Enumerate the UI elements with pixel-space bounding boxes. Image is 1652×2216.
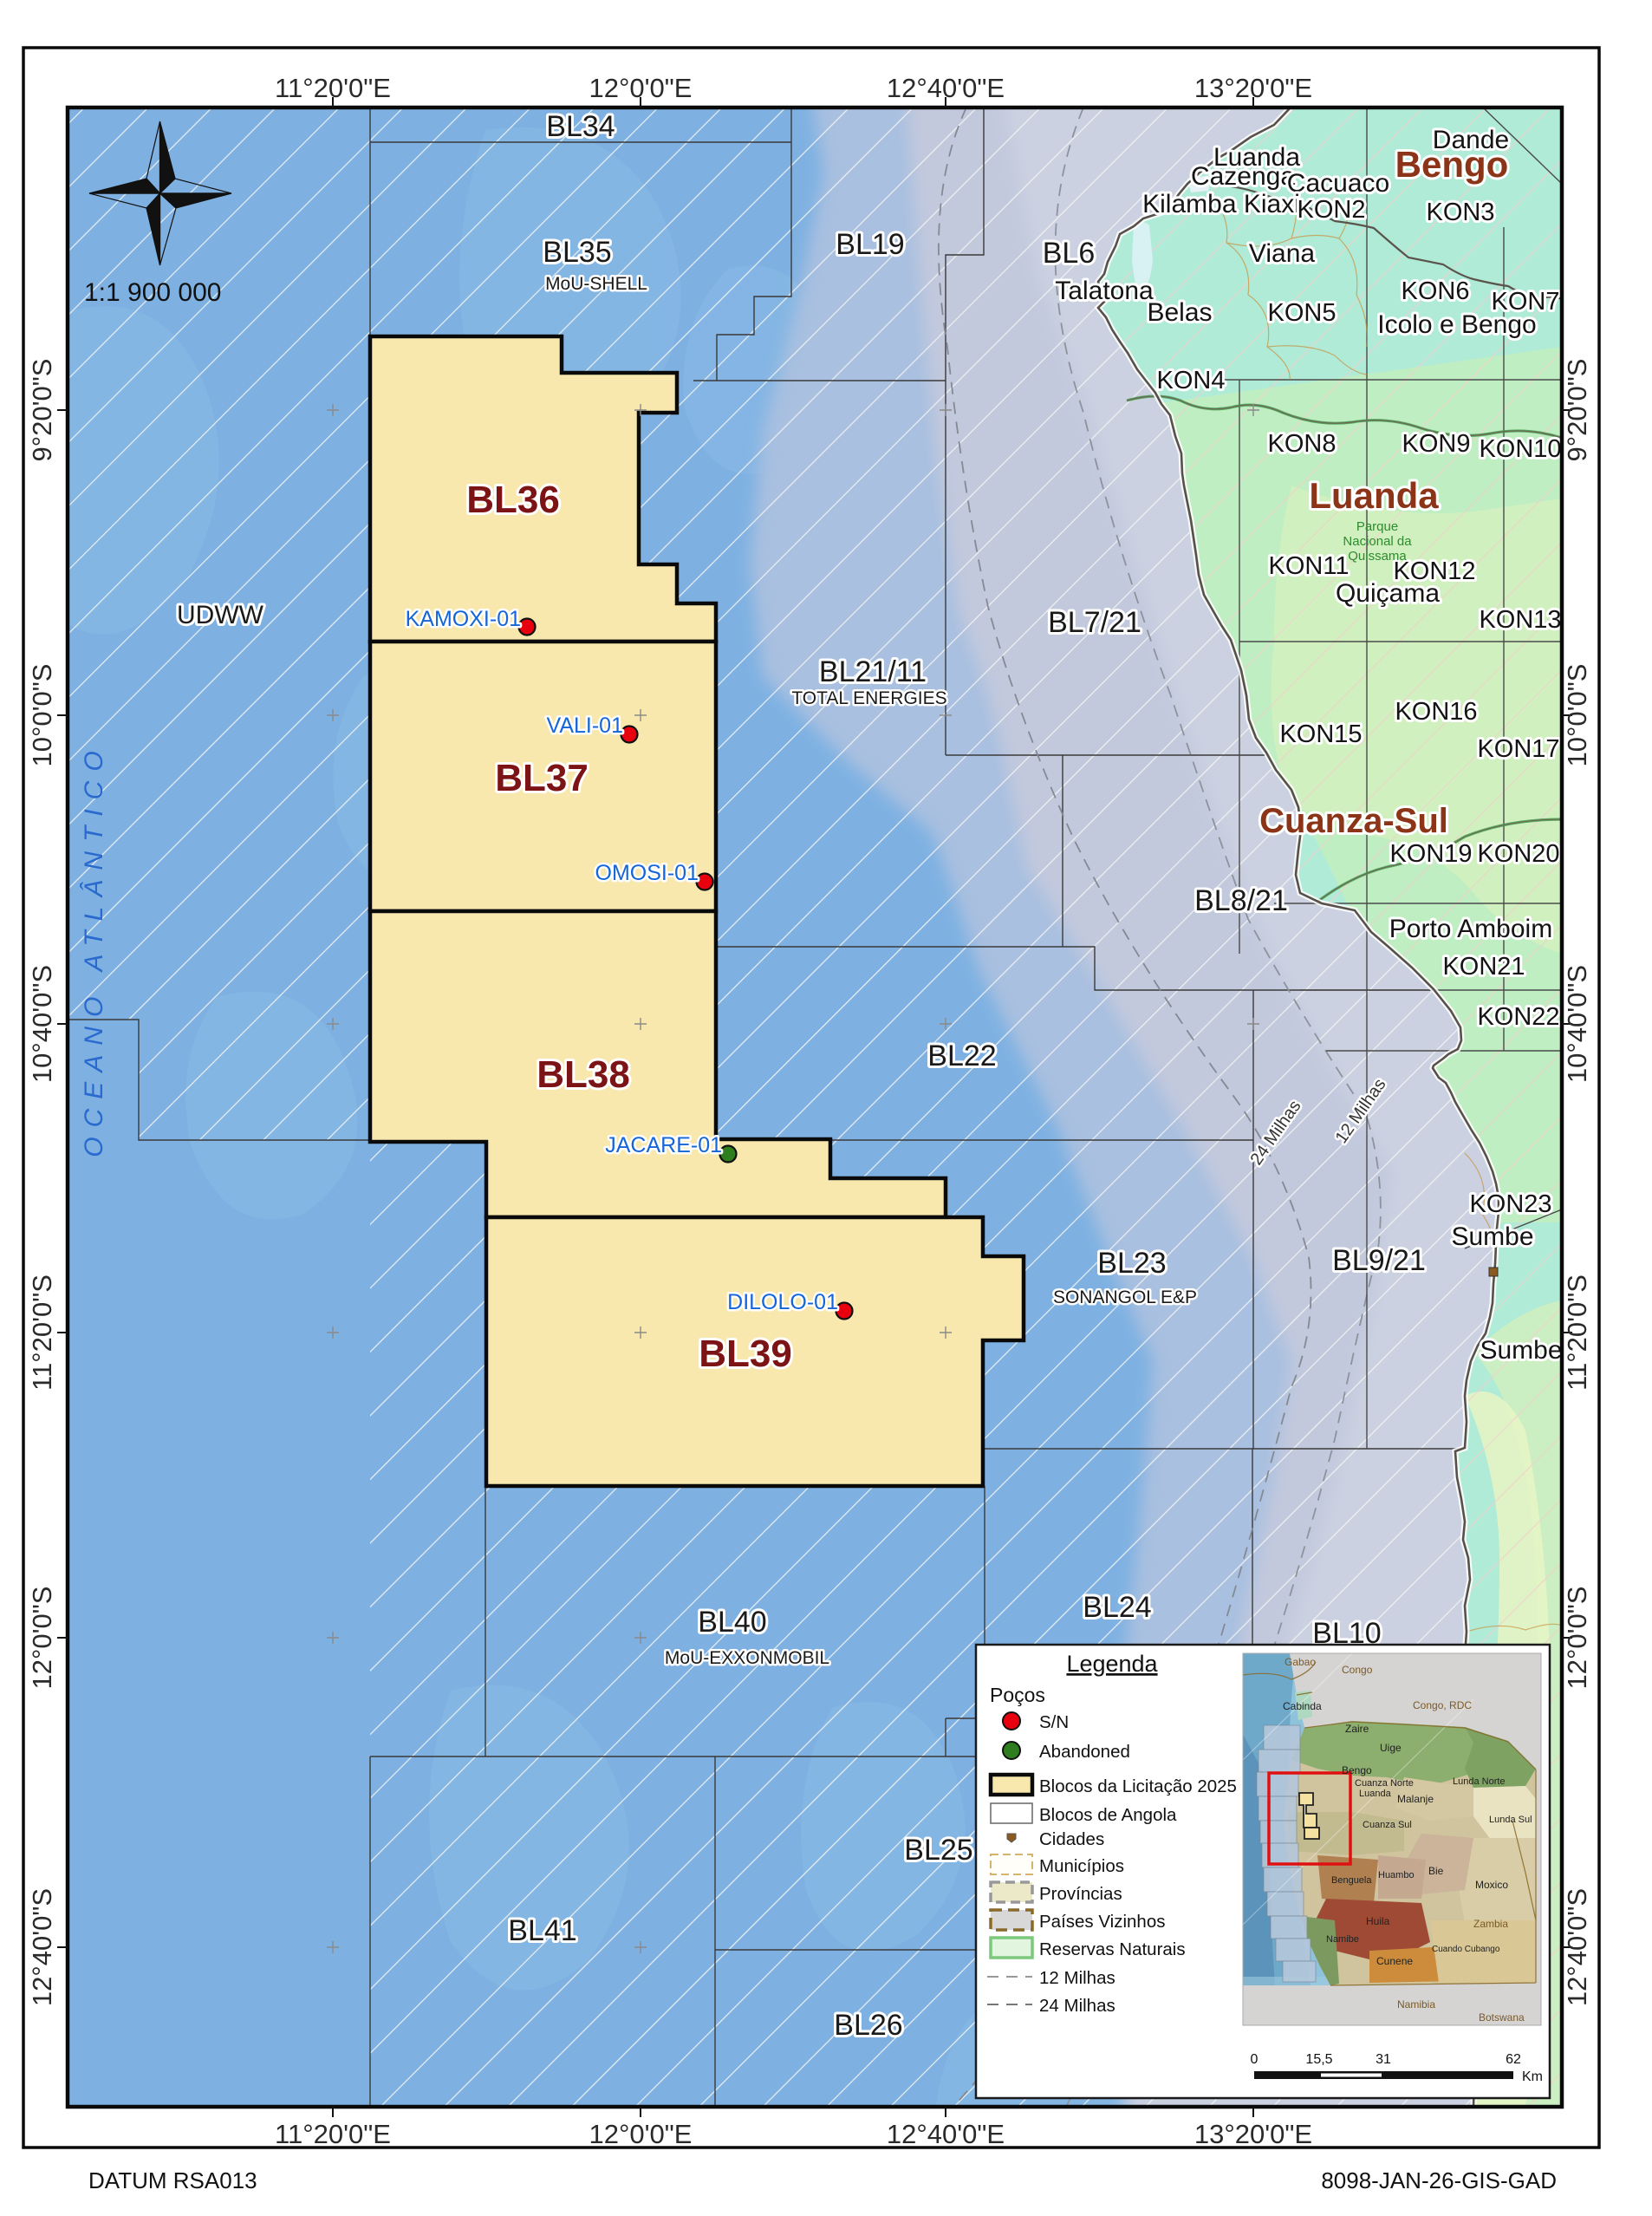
- svg-text:KON15: KON15: [1279, 720, 1362, 748]
- svg-text:BL38: BL38: [537, 1053, 630, 1096]
- svg-text:Namibia: Namibia: [1397, 1998, 1435, 2011]
- svg-text:S/N: S/N: [1039, 1712, 1069, 1732]
- svg-text:KON22: KON22: [1477, 1003, 1559, 1031]
- svg-text:UDWW: UDWW: [177, 601, 264, 629]
- svg-text:KON9: KON9: [1402, 430, 1471, 458]
- svg-text:KON10: KON10: [1479, 435, 1561, 463]
- svg-text:9°20'0"S: 9°20'0"S: [1562, 359, 1592, 462]
- svg-text:Municípios: Municípios: [1039, 1856, 1124, 1876]
- svg-text:Gabao: Gabao: [1285, 1656, 1316, 1668]
- svg-text:BL39: BL39: [699, 1333, 792, 1375]
- svg-text:BL34: BL34: [546, 110, 615, 143]
- svg-text:Moxico: Moxico: [1475, 1879, 1508, 1891]
- svg-text:BL40: BL40: [698, 1606, 766, 1639]
- svg-text:KON13: KON13: [1479, 606, 1561, 634]
- svg-text:12°40'0"E: 12°40'0"E: [887, 2119, 1005, 2149]
- svg-text:Benguela: Benguela: [1331, 1875, 1372, 1886]
- svg-text:KON21: KON21: [1442, 953, 1525, 981]
- svg-text:BL41: BL41: [508, 1914, 576, 1947]
- svg-text:Lunda Norte: Lunda Norte: [1453, 1776, 1506, 1787]
- svg-text:KON2: KON2: [1298, 196, 1366, 224]
- svg-text:DILOLO-01: DILOLO-01: [727, 1290, 838, 1314]
- svg-text:BL24: BL24: [1083, 1591, 1151, 1624]
- svg-text:KON19: KON19: [1389, 840, 1472, 868]
- svg-text:MoU-EXXONMOBIL: MoU-EXXONMOBIL: [665, 1648, 829, 1668]
- svg-text:Bengo: Bengo: [1342, 1764, 1372, 1776]
- svg-text:Namibe: Namibe: [1326, 1934, 1359, 1945]
- svg-text:Cuanza Norte: Cuanza Norte: [1355, 1778, 1414, 1789]
- svg-text:Parque: Parque: [1356, 519, 1398, 534]
- svg-text:Cuanza-Sul: Cuanza-Sul: [1259, 802, 1448, 840]
- svg-text:Congo: Congo: [1342, 1664, 1373, 1676]
- svg-text:11°20'0"E: 11°20'0"E: [275, 73, 391, 103]
- svg-text:Viana: Viana: [1249, 239, 1316, 268]
- svg-text:KON23: KON23: [1469, 1190, 1551, 1218]
- svg-text:KON16: KON16: [1395, 698, 1477, 726]
- svg-text:Talatona: Talatona: [1055, 277, 1154, 305]
- svg-text:KON17: KON17: [1477, 735, 1559, 763]
- svg-text:BL8/21: BL8/21: [1194, 884, 1288, 917]
- svg-text:Reservas Naturais: Reservas Naturais: [1039, 1939, 1186, 1959]
- svg-text:OCEANO ATLÂNTICO: OCEANO ATLÂNTICO: [80, 741, 108, 1157]
- svg-text:11°20'0"S: 11°20'0"S: [27, 1274, 57, 1391]
- svg-text:12°40'0"E: 12°40'0"E: [887, 73, 1005, 103]
- svg-text:10°40'0"S: 10°40'0"S: [1562, 965, 1592, 1083]
- svg-text:Botswana: Botswana: [1479, 2011, 1525, 2024]
- svg-text:KON20: KON20: [1477, 840, 1559, 868]
- svg-text:OMOSI-01: OMOSI-01: [595, 861, 699, 885]
- svg-text:12°0'0"E: 12°0'0"E: [589, 2119, 693, 2149]
- svg-text:13°20'0"E: 13°20'0"E: [1194, 2119, 1312, 2149]
- svg-text:Congo, RDC: Congo, RDC: [1413, 1699, 1472, 1711]
- svg-text:Nacional da: Nacional da: [1343, 534, 1412, 549]
- svg-text:12°40'0"S: 12°40'0"S: [27, 1888, 57, 2006]
- svg-text:Cuando Cubango: Cuando Cubango: [1432, 1945, 1500, 1954]
- svg-text:KON3: KON3: [1427, 199, 1495, 226]
- svg-text:BL6: BL6: [1043, 237, 1096, 270]
- svg-text:1:1 900 000: 1:1 900 000: [84, 278, 221, 307]
- svg-text:BL21/11: BL21/11: [819, 655, 927, 688]
- svg-text:KON4: KON4: [1157, 367, 1226, 394]
- svg-text:Sumbe: Sumbe: [1480, 1336, 1562, 1365]
- svg-text:SONANGOL E&P: SONANGOL E&P: [1053, 1287, 1197, 1307]
- svg-text:12°0'0"S: 12°0'0"S: [1562, 1587, 1592, 1690]
- svg-text:Blocos de Angola: Blocos de Angola: [1039, 1805, 1177, 1825]
- svg-text:Províncias: Províncias: [1039, 1884, 1122, 1904]
- svg-text:Cunene: Cunene: [1376, 1955, 1413, 1967]
- svg-text:12°0'0"S: 12°0'0"S: [27, 1587, 57, 1690]
- svg-text:15,5: 15,5: [1305, 2052, 1332, 2067]
- svg-text:Cidades: Cidades: [1039, 1829, 1104, 1849]
- svg-text:Países Vizinhos: Países Vizinhos: [1039, 1912, 1165, 1932]
- svg-text:9°20'0"S: 9°20'0"S: [27, 359, 57, 462]
- svg-text:Blocos da Licitação 2025: Blocos da Licitação 2025: [1039, 1776, 1237, 1796]
- svg-text:Dande: Dande: [1433, 126, 1509, 154]
- svg-text:11°20'0"S: 11°20'0"S: [1562, 1274, 1592, 1391]
- svg-text:BL26: BL26: [834, 2009, 902, 2042]
- svg-text:Huambo: Huambo: [1378, 1870, 1415, 1880]
- svg-text:Bie: Bie: [1428, 1865, 1444, 1877]
- svg-text:8098-JAN-26-GIS-GAD: 8098-JAN-26-GIS-GAD: [1321, 2167, 1557, 2193]
- svg-text:KON7: KON7: [1492, 288, 1560, 316]
- svg-text:Sumbe: Sumbe: [1451, 1222, 1533, 1251]
- svg-text:24 Milhas: 24 Milhas: [1039, 1996, 1115, 2016]
- svg-text:VALI-01: VALI-01: [547, 714, 623, 738]
- svg-text:12°0'0"E: 12°0'0"E: [589, 73, 693, 103]
- svg-text:11°20'0"E: 11°20'0"E: [275, 2119, 391, 2149]
- svg-text:Zaire: Zaire: [1345, 1723, 1369, 1735]
- svg-text:Cuanza Sul: Cuanza Sul: [1363, 1820, 1412, 1830]
- svg-text:12 Milhas: 12 Milhas: [1039, 1968, 1115, 1988]
- svg-text:62: 62: [1506, 2052, 1521, 2067]
- svg-text:10°40'0"S: 10°40'0"S: [27, 965, 57, 1083]
- svg-text:10°0'0"S: 10°0'0"S: [27, 664, 57, 767]
- svg-text:10°0'0"S: 10°0'0"S: [1562, 664, 1592, 767]
- svg-text:BL25: BL25: [904, 1834, 972, 1867]
- svg-text:BL19: BL19: [836, 228, 904, 261]
- svg-text:Luanda: Luanda: [1309, 475, 1439, 516]
- svg-text:BL36: BL36: [466, 479, 560, 521]
- svg-text:Porto Amboim: Porto Amboim: [1389, 915, 1552, 943]
- svg-text:Luanda: Luanda: [1359, 1789, 1392, 1799]
- svg-text:BL35: BL35: [543, 236, 611, 269]
- svg-text:Abandoned: Abandoned: [1039, 1742, 1130, 1762]
- svg-text:Uige: Uige: [1380, 1742, 1402, 1754]
- svg-text:DATUM RSA013: DATUM RSA013: [88, 2167, 257, 2193]
- svg-text:KAMOXI-01: KAMOXI-01: [406, 607, 521, 631]
- svg-text:Legenda: Legenda: [1066, 1651, 1158, 1677]
- svg-text:Quissama: Quissama: [1348, 549, 1407, 564]
- svg-text:Belas: Belas: [1147, 298, 1212, 327]
- svg-text:BL23: BL23: [1097, 1247, 1166, 1280]
- svg-text:BL22: BL22: [927, 1040, 996, 1072]
- svg-text:JACARE-01: JACARE-01: [605, 1133, 722, 1157]
- svg-text:Cazenga: Cazenga: [1191, 162, 1295, 191]
- svg-text:Malanje: Malanje: [1397, 1793, 1434, 1805]
- svg-text:Poços: Poços: [990, 1684, 1045, 1706]
- svg-text:BL37: BL37: [495, 757, 589, 799]
- svg-text:Zambia: Zambia: [1473, 1918, 1508, 1930]
- svg-text:31: 31: [1376, 2052, 1391, 2067]
- svg-text:Huila: Huila: [1366, 1915, 1390, 1927]
- svg-text:Km: Km: [1522, 2069, 1543, 2084]
- svg-text:0: 0: [1251, 2052, 1259, 2067]
- svg-text:BL9/21: BL9/21: [1332, 1244, 1426, 1277]
- svg-text:Cabinda: Cabinda: [1283, 1700, 1322, 1712]
- svg-text:KON8: KON8: [1268, 430, 1337, 458]
- svg-text:Cacuaco: Cacuaco: [1287, 169, 1389, 198]
- svg-text:KON6: KON6: [1402, 277, 1470, 305]
- svg-text:Lunda Sul: Lunda Sul: [1489, 1815, 1532, 1825]
- svg-text:BL7/21: BL7/21: [1048, 606, 1141, 639]
- svg-text:TOTAL ENERGIES: TOTAL ENERGIES: [791, 688, 946, 708]
- svg-text:13°20'0"E: 13°20'0"E: [1194, 73, 1312, 103]
- svg-text:MoU-SHELL: MoU-SHELL: [545, 274, 647, 294]
- svg-text:12°40'0"S: 12°40'0"S: [1562, 1888, 1592, 2006]
- svg-text:Kilamba Kiaxi: Kilamba Kiaxi: [1142, 190, 1300, 218]
- svg-text:KON11: KON11: [1269, 552, 1350, 580]
- svg-text:KON5: KON5: [1268, 299, 1337, 327]
